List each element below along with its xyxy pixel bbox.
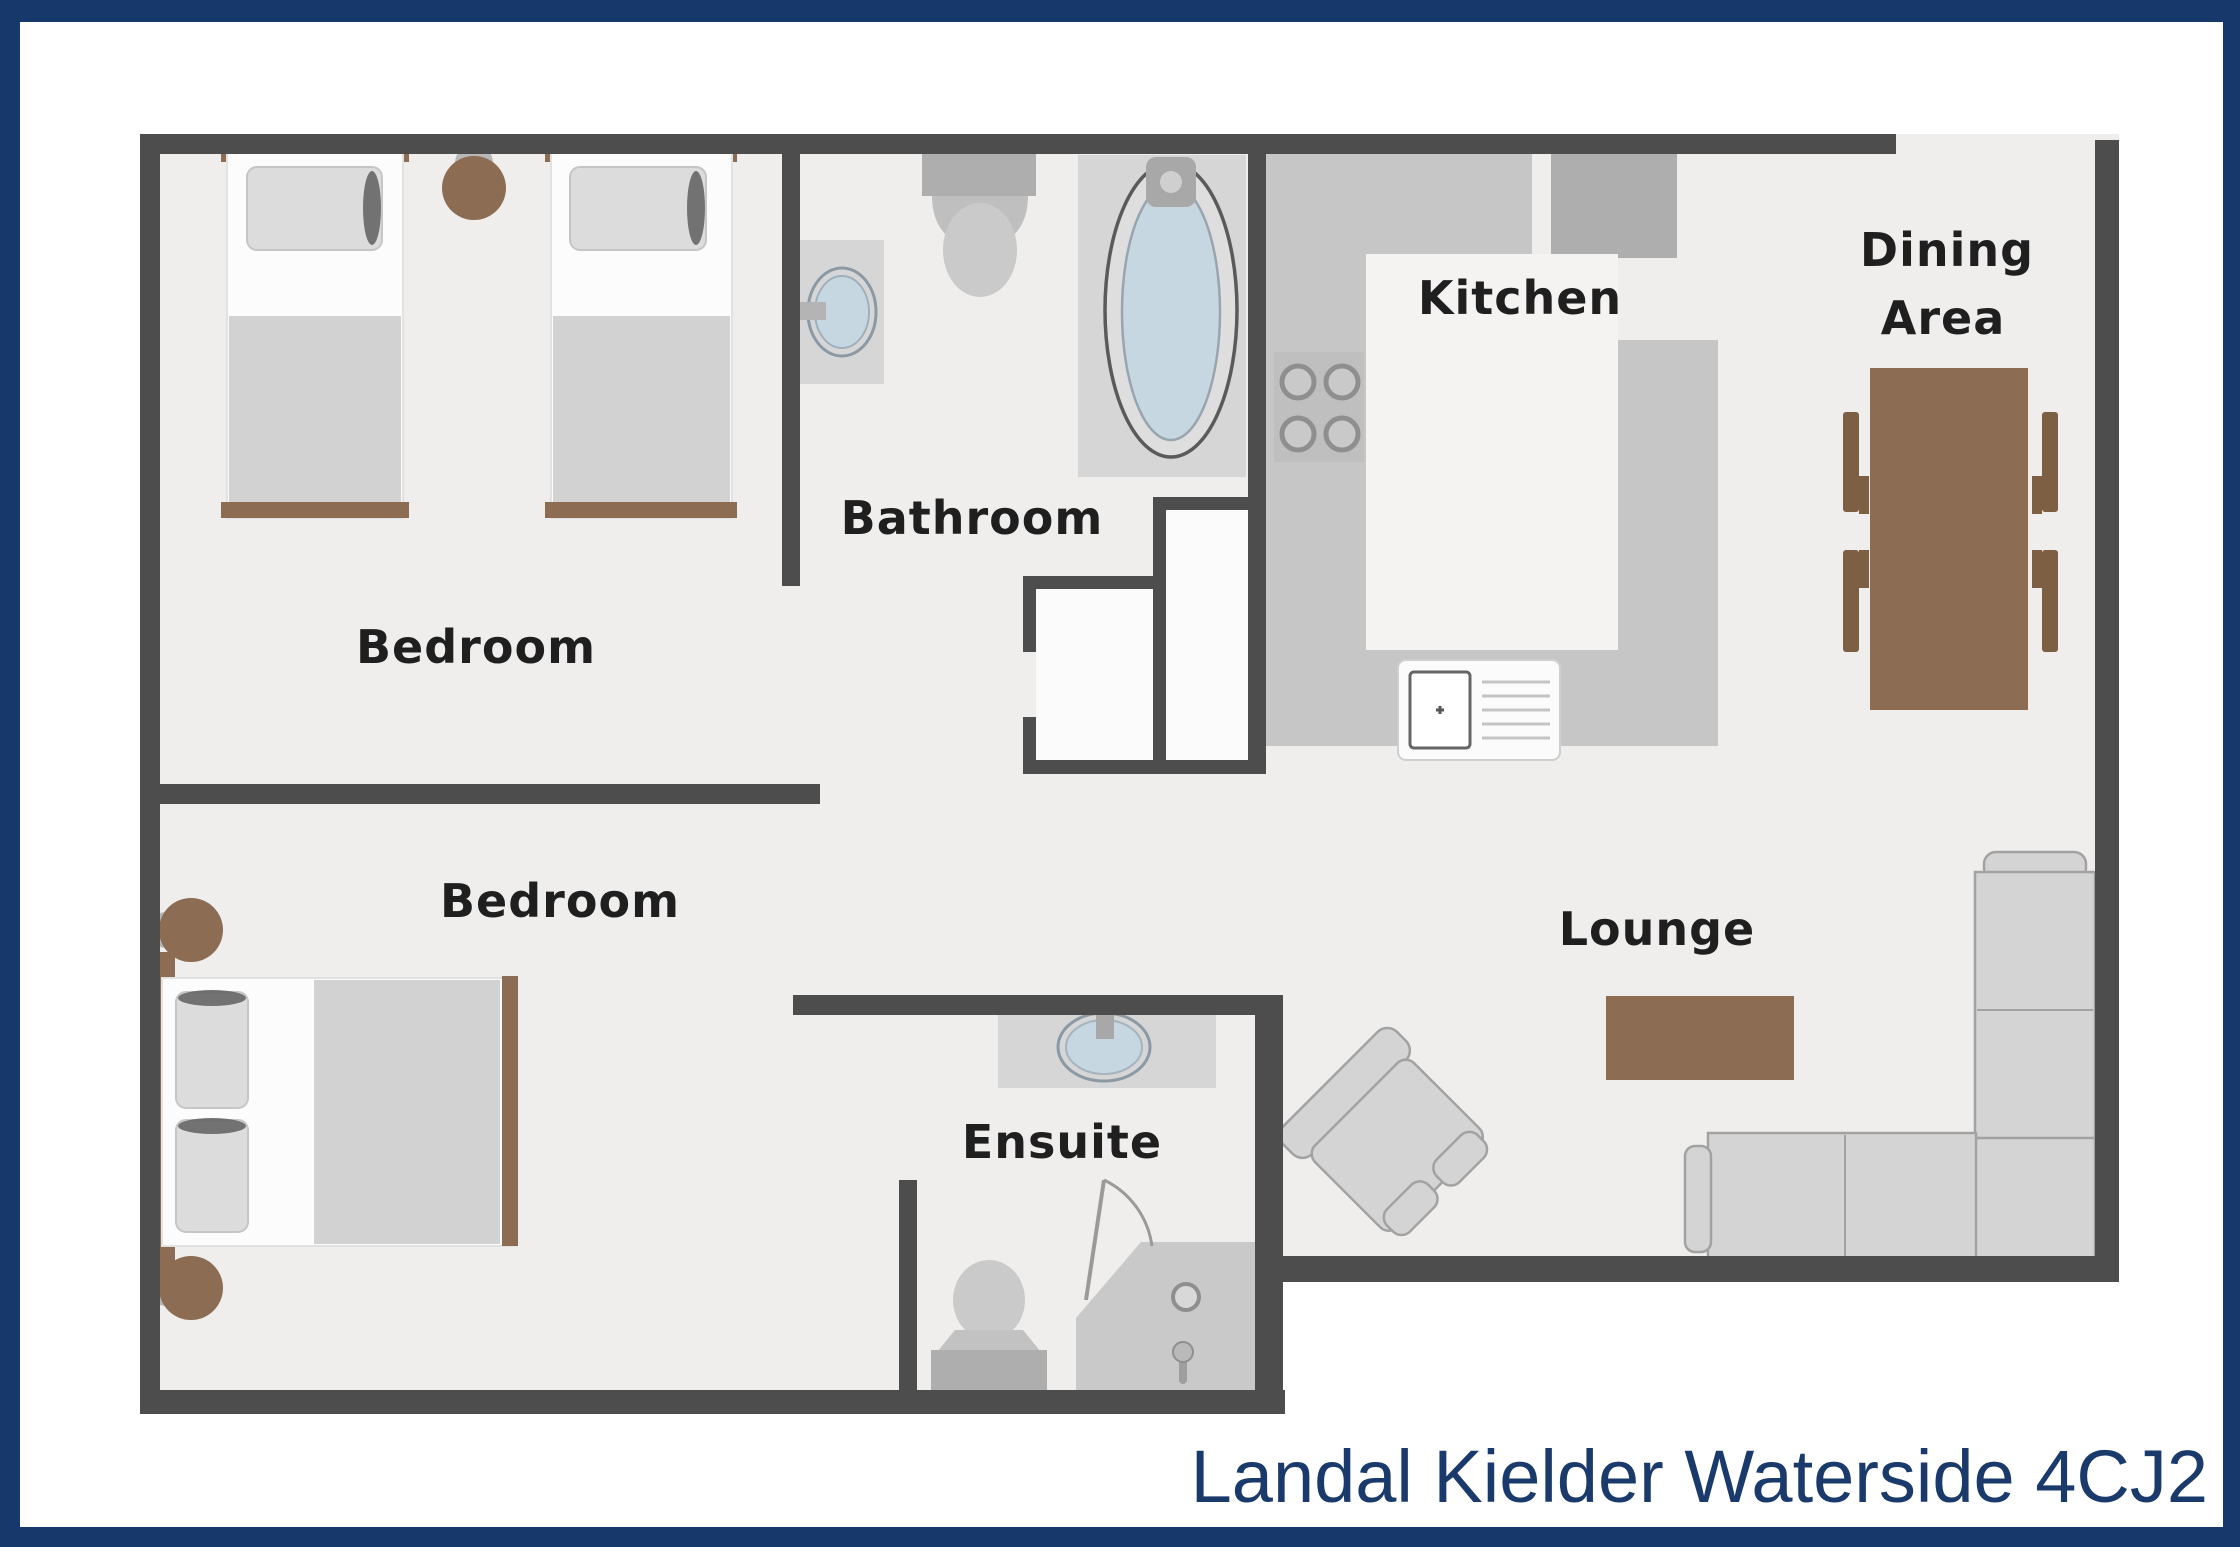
wall-cupboard-left [1153,497,1166,773]
twin-bed-footboard [545,502,737,518]
twin-bed-footboard [221,502,409,518]
coffee-table [1606,996,1794,1080]
stove-burner [1326,418,1358,450]
label-dining-line2: Area [1881,291,2006,345]
dining-chair [2042,550,2058,652]
ensuite-sink-tap [1096,1013,1114,1039]
bathroom-sink-tap [798,302,826,320]
wall-nook-left-lower [1023,717,1036,774]
wall-lounge-bottom [1255,1256,2119,1282]
toilet-tank [922,150,1036,196]
dining-chair [1843,550,1859,652]
floor-plan-canvas: Bedroom Bathroom Kitchen Dining Area Bed… [0,0,2240,1547]
twin-bed-blanket [229,316,401,502]
wall-ensuite-stub [899,1180,917,1414]
wall-bedroom-bathroom-divider [782,134,800,586]
twin-bed-pillow [247,167,382,250]
wall-ensuite-right [1255,995,1283,1414]
pillow-shade [178,990,246,1006]
label-bathroom: Bathroom [841,491,1104,545]
shower-head [1173,1284,1199,1310]
twin-bed-pillow [570,167,706,250]
wall-nook-left-upper [1023,576,1036,652]
sofa-bottom-section [1708,1133,1976,1260]
wall-bedroom-top-bottom [140,784,820,804]
wall-cupboard-top [1153,497,1266,510]
label-bedroom-bottom: Bedroom [440,874,680,928]
double-bed-footboard [502,976,518,1246]
wall-left [140,134,160,1412]
label-lounge: Lounge [1559,902,1756,956]
dining-chair-seat [1859,550,1869,588]
label-kitchen: Kitchen [1418,271,1622,325]
double-bed-pillow [176,1120,248,1232]
dining-chair [2042,412,2058,512]
sofa-arm-cap [1685,1146,1711,1252]
sofa-right-section [1975,872,2095,1140]
shower-control-knob [1173,1342,1193,1362]
label-dining-line1: Dining [1860,223,2034,277]
kitchen-counter-top [1266,154,1532,254]
kitchen-fixtures [1266,154,1718,760]
caption-group: Landal Kielder Waterside 4CJ2 [1191,1435,2208,1518]
storage-nook-interior [1036,589,1153,760]
pillow-shade [363,171,381,245]
dining-chair [1843,412,1859,512]
dining-chair-seat [2032,476,2042,514]
bathtub-water [1122,184,1220,440]
bedside-table [159,1256,223,1320]
dining-furniture [1843,368,2058,710]
wall-bottom [140,1390,1285,1414]
kitchen-fridge [1551,154,1677,258]
dining-chair-seat [1859,476,1869,514]
pillow-shade [687,171,705,245]
pillow-shade [178,1118,246,1134]
bathtub-tap-knob [1160,171,1182,193]
ensuite-toilet-tank [931,1350,1047,1392]
floor-plan-page: Bedroom Bathroom Kitchen Dining Area Bed… [0,0,2240,1547]
ensuite-toilet-seat [937,1330,1041,1352]
sofa-corner-section [1975,1138,2095,1260]
label-bedroom-top: Bedroom [356,620,596,674]
cupboard-interior [1166,510,1248,760]
plan-caption: Landal Kielder Waterside 4CJ2 [1191,1435,2208,1518]
bedside-table [442,156,506,220]
twin-bed-blanket [553,316,730,502]
wall-right [2095,140,2119,1282]
ensuite-toilet-bowl [953,1260,1025,1340]
label-ensuite: Ensuite [962,1115,1162,1169]
stove-burner [1282,366,1314,398]
bedside-table [159,898,223,962]
stove-burner [1282,418,1314,450]
wall-cupboard-bottom [1023,760,1266,774]
wall-top [140,134,1896,154]
double-bed-pillow [176,992,248,1108]
stove-burner [1326,366,1358,398]
dining-table [1870,368,2028,710]
wall-ensuite-top [793,995,1283,1015]
double-bed-blanket [314,980,500,1244]
wall-nook-top [1023,576,1153,589]
dining-chair-seat [2032,550,2042,588]
wall-bathroom-kitchen-divider [1248,134,1266,774]
kitchen-counter-right [1618,340,1718,652]
toilet-bowl [943,203,1017,297]
